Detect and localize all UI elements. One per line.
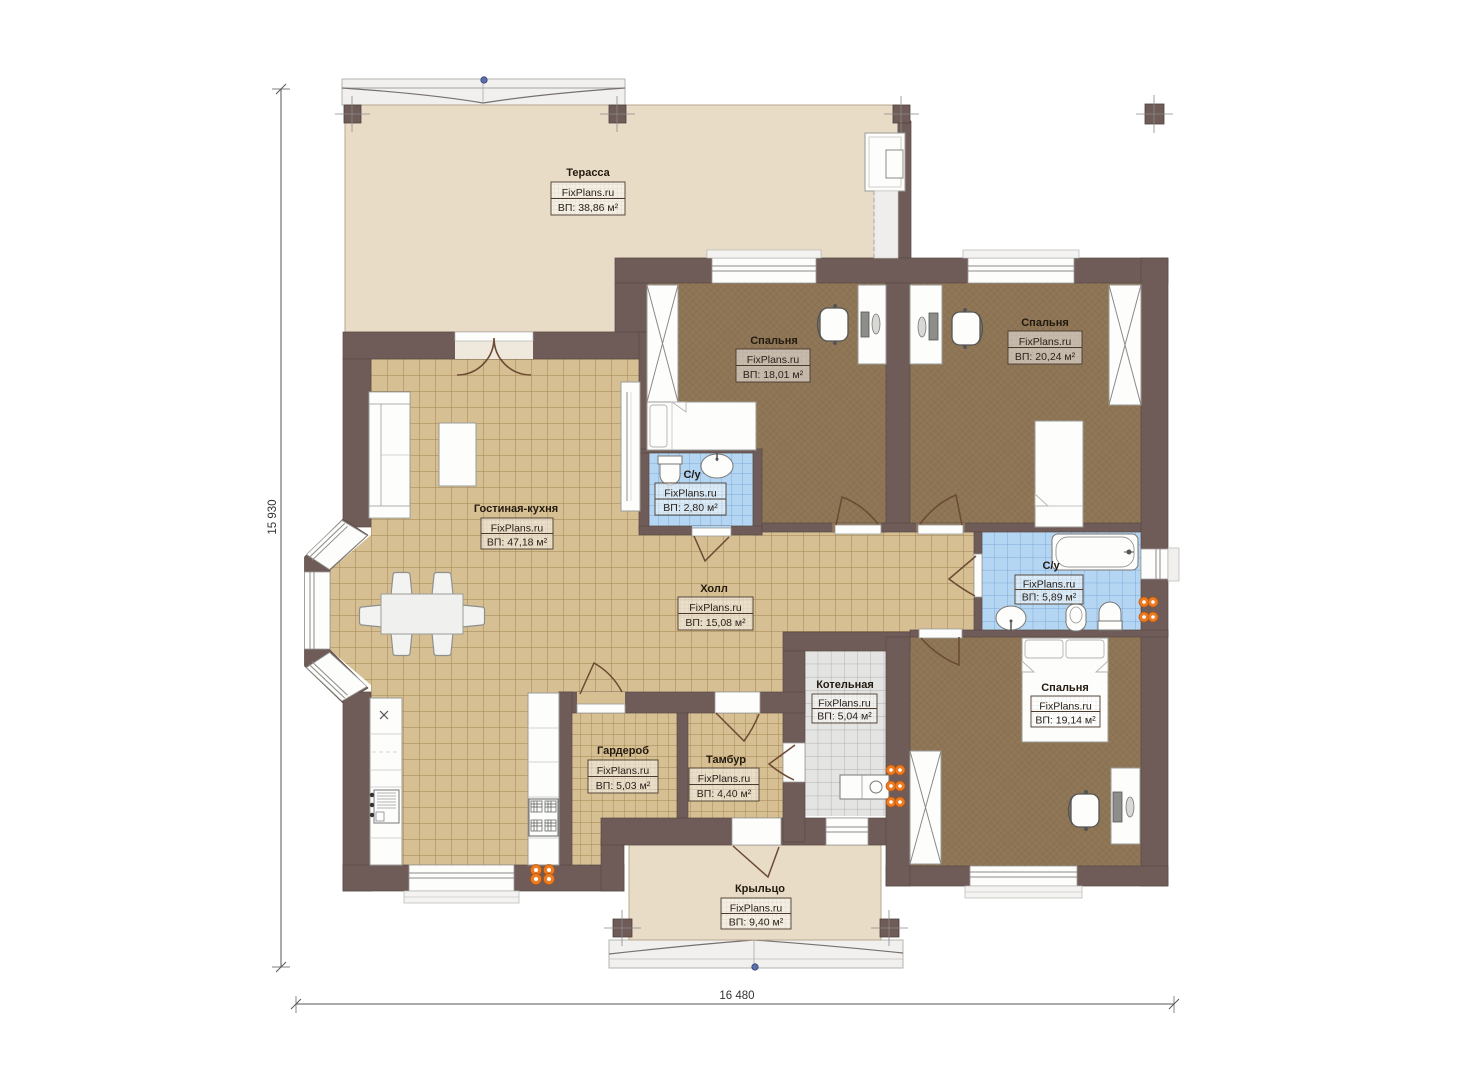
svg-text:Котельная: Котельная — [816, 679, 874, 691]
svg-text:FixPlans.ru: FixPlans.ru — [491, 522, 544, 534]
svg-text:С/у: С/у — [1042, 560, 1060, 572]
svg-text:ВП: 2,80 м²: ВП: 2,80 м² — [663, 502, 718, 514]
svg-text:ВП: 18,01 м²: ВП: 18,01 м² — [743, 369, 804, 381]
svg-text:Гостиная-кухня: Гостиная-кухня — [474, 503, 558, 515]
svg-text:FixPlans.ru: FixPlans.ru — [730, 902, 783, 914]
svg-text:FixPlans.ru: FixPlans.ru — [1039, 700, 1092, 712]
svg-text:Холл: Холл — [700, 583, 728, 595]
svg-text:Гардероб: Гардероб — [597, 745, 649, 757]
svg-text:Спальня: Спальня — [1021, 317, 1069, 329]
svg-text:Тамбур: Тамбур — [706, 754, 746, 766]
svg-text:FixPlans.ru: FixPlans.ru — [562, 187, 615, 199]
svg-text:FixPlans.ru: FixPlans.ru — [747, 354, 800, 366]
svg-text:ВП: 38,86 м²: ВП: 38,86 м² — [558, 202, 619, 214]
svg-text:ВП: 5,04 м²: ВП: 5,04 м² — [817, 711, 872, 723]
svg-text:ВП: 20,24 м²: ВП: 20,24 м² — [1015, 351, 1076, 363]
svg-text:FixPlans.ru: FixPlans.ru — [1019, 336, 1072, 348]
svg-text:Крыльцо: Крыльцо — [735, 883, 785, 895]
svg-text:С/у: С/у — [683, 469, 701, 481]
svg-text:Спальня: Спальня — [750, 335, 798, 347]
svg-text:ВП: 5,03 м²: ВП: 5,03 м² — [596, 780, 651, 792]
svg-text:ВП: 15,08 м²: ВП: 15,08 м² — [685, 617, 746, 629]
svg-text:ВП: 47,18 м²: ВП: 47,18 м² — [487, 536, 548, 548]
svg-text:FixPlans.ru: FixPlans.ru — [698, 773, 751, 785]
svg-text:FixPlans.ru: FixPlans.ru — [664, 488, 717, 500]
svg-text:FixPlans.ru: FixPlans.ru — [689, 602, 742, 614]
svg-text:16 480: 16 480 — [719, 990, 754, 1002]
svg-text:FixPlans.ru: FixPlans.ru — [818, 698, 871, 710]
svg-text:Терасса: Терасса — [566, 167, 610, 179]
svg-text:15 930: 15 930 — [267, 499, 279, 534]
svg-text:FixPlans.ru: FixPlans.ru — [597, 765, 650, 777]
svg-text:ВП: 19,14 м²: ВП: 19,14 м² — [1035, 714, 1096, 726]
svg-text:ВП: 5,89 м²: ВП: 5,89 м² — [1022, 592, 1077, 604]
svg-text:ВП: 4,40 м²: ВП: 4,40 м² — [697, 788, 752, 800]
svg-text:FixPlans.ru: FixPlans.ru — [1023, 579, 1076, 591]
svg-text:Спальня: Спальня — [1041, 682, 1089, 694]
svg-text:ВП: 9,40 м²: ВП: 9,40 м² — [729, 916, 784, 928]
